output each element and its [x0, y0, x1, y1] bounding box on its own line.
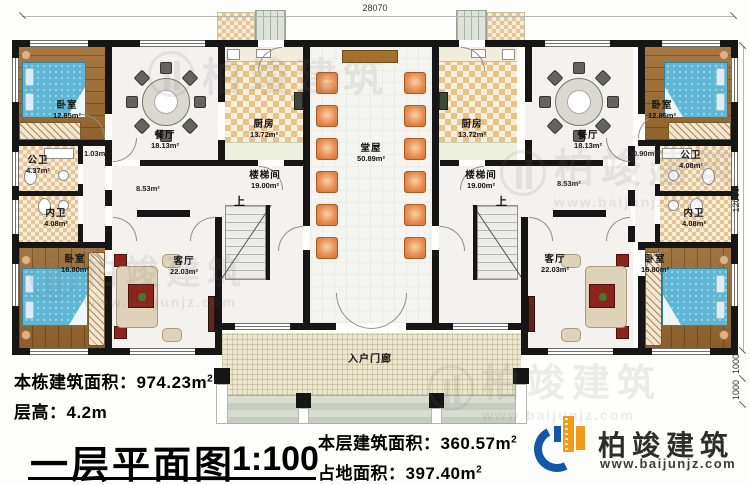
pillow	[25, 93, 34, 111]
footprint-area-label: 占地面积：	[318, 464, 406, 483]
stove	[439, 92, 448, 110]
pillow	[716, 301, 725, 319]
porch-column	[513, 368, 529, 384]
bed	[664, 62, 728, 118]
hall-chair	[316, 105, 338, 127]
dining-chair	[539, 96, 551, 108]
altar-table	[342, 50, 398, 63]
wall	[638, 40, 645, 114]
floor-area-label: 本层建筑面积：	[318, 434, 441, 453]
floor-height-label: 层高：	[14, 403, 67, 422]
nightstand	[21, 50, 31, 60]
wall	[290, 323, 336, 330]
toilet	[702, 168, 715, 185]
wall	[140, 160, 258, 166]
building-total-area-value: 974.23m	[137, 373, 208, 392]
hall-chair	[316, 138, 338, 160]
building-total-area: 本栋建筑面积：974.23m2	[14, 368, 213, 393]
floor-plan-canvas: 卧室 12.85m² 餐厅 18.13m² 厨房 13.72m² 堂屋 50.8…	[0, 0, 750, 485]
wall	[432, 40, 439, 226]
door-arc	[638, 114, 662, 138]
dimension-line	[22, 16, 734, 17]
hall-chair	[316, 237, 338, 259]
company-logo	[534, 414, 590, 476]
stove	[294, 92, 303, 110]
stairs-up-label-right: 上	[496, 193, 507, 209]
hall-chair	[316, 204, 338, 226]
hall-chair	[404, 72, 426, 94]
closet-left	[83, 146, 105, 242]
wall	[638, 242, 738, 248]
closet-right-area: 0.90m²	[633, 149, 657, 158]
wall	[105, 276, 112, 355]
window	[12, 58, 19, 102]
floor-height: 层高：4.2m	[14, 398, 107, 423]
porch-column	[296, 393, 311, 408]
armchair	[162, 254, 182, 268]
logo-building-bar-icon	[554, 426, 561, 442]
wall	[660, 191, 738, 196]
hall-chair	[404, 138, 426, 160]
toilet	[690, 198, 703, 215]
dining-chair	[607, 96, 619, 108]
tv	[208, 296, 215, 332]
window	[662, 40, 720, 47]
vanity	[44, 148, 74, 159]
coffee-table	[128, 284, 154, 308]
nightstand	[719, 255, 729, 265]
sink	[668, 170, 679, 181]
pillow	[716, 68, 725, 86]
plant	[599, 293, 607, 301]
blanket-fold	[665, 87, 683, 117]
hall-chair	[316, 171, 338, 193]
wall	[284, 160, 303, 166]
company-url: www.baijunjz.com	[600, 456, 736, 471]
front-door-leaf	[371, 293, 407, 329]
wall	[440, 160, 459, 166]
wall	[638, 276, 645, 355]
fridge	[227, 49, 240, 60]
title-underline	[28, 477, 316, 480]
tv	[528, 296, 535, 332]
wall	[105, 40, 112, 114]
footprint-area: 占地面积：397.40m2	[318, 459, 482, 484]
wall	[432, 250, 439, 330]
dimension-overall-width: 28070	[340, 3, 410, 13]
hall-chair	[404, 171, 426, 193]
armchair	[561, 328, 581, 342]
closet-left-area: 1.03m²	[84, 149, 108, 158]
window	[12, 200, 19, 234]
pillow	[716, 93, 725, 111]
porch-column	[214, 368, 230, 384]
wall	[215, 217, 222, 355]
floor-area-sup: 2	[511, 434, 517, 445]
kitchen-left-counter-zone	[225, 142, 303, 160]
wall	[553, 210, 606, 217]
footprint-area-sup: 2	[476, 464, 482, 475]
floor-area-value: 360.57m	[441, 434, 512, 453]
plant	[138, 293, 146, 301]
bed	[662, 268, 728, 326]
wall	[12, 191, 78, 196]
wall	[303, 250, 310, 330]
sink	[668, 200, 679, 211]
vanity	[662, 148, 692, 159]
wall	[521, 217, 528, 355]
dining-chair	[194, 96, 206, 108]
closet-right	[635, 146, 655, 242]
dimension-overall-depth: 12000	[731, 170, 743, 230]
kitchen-right-counter-zone	[439, 142, 517, 160]
bed	[22, 268, 88, 326]
pillow	[25, 275, 34, 293]
window	[731, 264, 738, 306]
dining-chair	[160, 130, 172, 142]
window	[130, 348, 195, 355]
porch-column	[429, 393, 444, 408]
window	[731, 58, 738, 102]
window	[140, 40, 205, 47]
window	[12, 152, 19, 186]
building-total-area-sup: 2	[207, 373, 213, 384]
wall	[78, 184, 83, 196]
corridor-left-area: 8.53m²	[136, 184, 160, 193]
wall	[12, 242, 112, 248]
wall	[406, 323, 453, 330]
coffee-table	[589, 284, 615, 308]
sink	[58, 170, 69, 181]
porch-column-base	[298, 408, 309, 424]
entrance-porch	[222, 333, 521, 395]
hall-chair	[404, 105, 426, 127]
wall	[218, 40, 225, 102]
back-door-opening	[459, 40, 485, 47]
window	[545, 40, 610, 47]
stair-rail	[266, 205, 270, 280]
window	[652, 348, 710, 355]
window	[30, 348, 88, 355]
dining-table	[555, 78, 603, 126]
pillow	[25, 301, 34, 319]
logo-building-bar-icon	[576, 426, 585, 450]
hall-chair	[404, 204, 426, 226]
wall	[485, 160, 603, 166]
dining-table	[142, 78, 190, 126]
stair-rail	[473, 205, 477, 280]
window	[548, 348, 613, 355]
corridor-right-area: 8.53m²	[557, 179, 581, 188]
wall	[655, 224, 660, 242]
blanket-fold	[69, 295, 87, 325]
porch-column-base	[431, 408, 442, 424]
bed	[22, 62, 86, 118]
wall	[303, 40, 310, 226]
armchair	[561, 254, 581, 268]
porch-column-base	[515, 384, 527, 424]
wall	[12, 40, 738, 47]
floor-height-value: 4.2m	[67, 403, 108, 422]
front-steps	[222, 395, 521, 424]
back-door-opening	[258, 40, 284, 47]
window	[235, 323, 290, 330]
window	[12, 264, 19, 306]
wall	[105, 190, 112, 206]
porch-column-base	[216, 384, 228, 424]
wall	[105, 242, 112, 250]
plan-scale: 1:100	[232, 440, 319, 479]
back-stoop-steps-right	[456, 10, 487, 41]
floor-area: 本层建筑面积：360.57m2	[318, 429, 517, 454]
dimension-steps-depth: 1000	[731, 360, 743, 420]
nightstand	[719, 330, 729, 340]
dining-table-top	[567, 90, 591, 114]
wall	[12, 140, 112, 146]
wall	[638, 242, 645, 250]
blanket-fold	[67, 87, 85, 117]
dining-chair	[160, 62, 172, 74]
blanket-fold	[663, 295, 681, 325]
stairs-up-label-left: 上	[234, 193, 245, 209]
hall-chair	[404, 237, 426, 259]
logo-building-bar-icon	[563, 416, 574, 452]
wardrobe	[668, 122, 731, 140]
wall	[78, 146, 83, 164]
pillow	[716, 275, 725, 293]
wall	[78, 224, 83, 242]
nightstand	[21, 255, 31, 265]
nightstand	[21, 330, 31, 340]
toilet	[24, 168, 37, 185]
dining-chair	[126, 96, 138, 108]
window	[30, 40, 88, 47]
wall	[638, 140, 738, 146]
armchair	[162, 328, 182, 342]
wall	[628, 190, 635, 206]
pillow	[25, 68, 34, 86]
footprint-area-value: 397.40m	[406, 464, 477, 483]
back-stoop-steps-left	[255, 10, 286, 41]
front-door-leaf	[336, 293, 372, 329]
wall	[137, 210, 190, 217]
dining-table-top	[154, 90, 178, 114]
dining-chair	[573, 130, 585, 142]
wardrobe	[19, 122, 81, 140]
wall	[525, 40, 532, 102]
dimension-line	[743, 47, 744, 351]
dining-chair	[573, 62, 585, 74]
hall-chair	[316, 72, 338, 94]
building-total-area-label: 本栋建筑面积：	[14, 373, 137, 392]
fridge	[502, 49, 515, 60]
nightstand	[719, 50, 729, 60]
toilet	[38, 198, 51, 215]
sink	[58, 200, 69, 211]
wall	[105, 226, 112, 242]
window	[453, 323, 508, 330]
